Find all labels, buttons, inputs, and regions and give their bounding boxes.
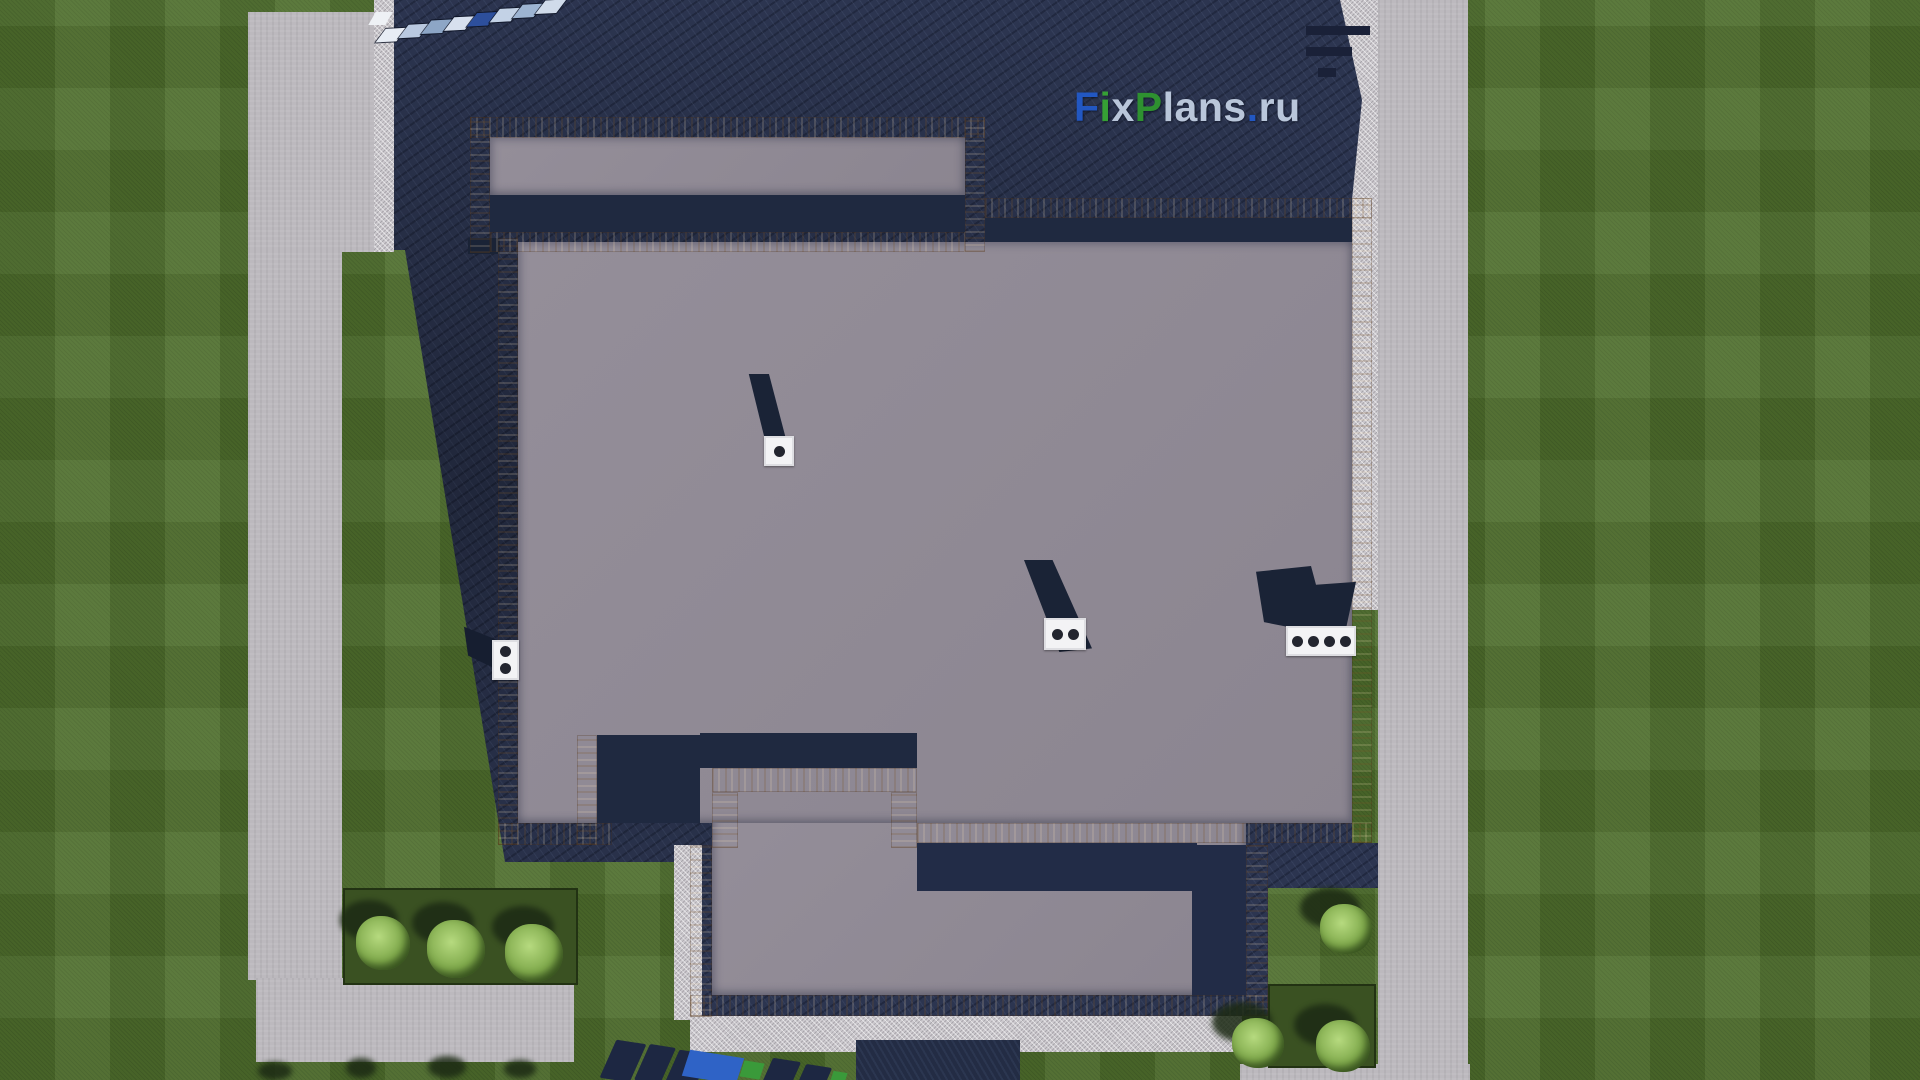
- tree-shadow: [258, 1062, 292, 1080]
- upper-roof-band: [490, 137, 965, 195]
- concrete-path-right: [1378, 0, 1468, 1080]
- tree-shadow: [504, 1060, 536, 1078]
- wood-parapet-bridge: [712, 768, 917, 792]
- watermark-letter: a: [1175, 84, 1198, 130]
- wood-parapet-top-right: [985, 198, 1372, 218]
- vent-hole: [1308, 636, 1319, 647]
- bush-right-corner: [1232, 1018, 1284, 1068]
- wood-parapet-bottom-right: [917, 823, 1372, 843]
- logo-green-shape: [739, 1060, 764, 1079]
- bush: [505, 924, 563, 982]
- wood-parapet-right: [1352, 198, 1372, 843]
- wood-parapet-notch-left: [577, 735, 597, 845]
- wood-bridge-leg-right: [891, 792, 917, 848]
- logo-letter-shape: [794, 1064, 832, 1080]
- logo-blue-shape: [682, 1050, 744, 1080]
- roof-notch-left: [597, 735, 700, 823]
- bush: [427, 920, 485, 978]
- wood-parapet-left-upper: [470, 117, 490, 253]
- ground-logo-3d: [608, 1036, 888, 1080]
- watermark: FixPlans.ru: [1074, 84, 1301, 131]
- vent-2-cap: [1044, 618, 1086, 650]
- bush-right-upper: [1320, 904, 1372, 954]
- concrete-pad-top-left: [248, 12, 376, 252]
- driveway-panel: [535, 0, 566, 14]
- vent-1-cap: [764, 436, 794, 466]
- entry-step-1: [1306, 26, 1370, 35]
- bush: [356, 916, 410, 970]
- wood-bridge-leg-left: [712, 792, 738, 848]
- tree-shadow: [428, 1056, 466, 1078]
- tree-shadow: [346, 1058, 376, 1078]
- watermark-letter: l: [1163, 84, 1175, 130]
- lower-roof-wood-bottom: [690, 995, 1268, 1016]
- wood-parapet-step: [965, 117, 985, 252]
- vent-3-cap: [1286, 626, 1356, 656]
- entry-step-3: [1318, 68, 1336, 77]
- watermark-letter: F: [1074, 84, 1100, 130]
- watermark-letter: n: [1198, 84, 1224, 130]
- roof-gap-shadow-top-right: [985, 218, 1352, 242]
- lower-roof-wood-right: [1246, 845, 1268, 1016]
- logo-green-shape: [830, 1071, 847, 1080]
- vent-hole: [500, 663, 511, 674]
- watermark-letter: .: [1247, 84, 1259, 130]
- watermark-letter: i: [1100, 84, 1112, 130]
- vent-hole: [500, 646, 511, 657]
- vent-left-cap: [492, 640, 519, 680]
- lower-roof-shadow-band-right: [1192, 845, 1246, 997]
- watermark-letter: s: [1223, 84, 1246, 130]
- entry-step-2: [1306, 47, 1352, 56]
- watermark-letter: x: [1111, 84, 1134, 130]
- bush-right-lower: [1316, 1020, 1370, 1072]
- wood-parapet-top-left: [470, 117, 985, 138]
- vent-hole: [1068, 629, 1079, 640]
- wood-parapet-inner-sill: [490, 232, 965, 252]
- wood-parapet-left: [498, 238, 518, 845]
- watermark-letter: u: [1275, 84, 1301, 130]
- vent-hole: [1292, 636, 1303, 647]
- vent-hole: [1052, 629, 1063, 640]
- concrete-path-left: [248, 250, 342, 980]
- roof-notch-center: [700, 733, 917, 768]
- site-plan-render: FixPlans.ru: [0, 0, 1920, 1080]
- vent-hole: [1340, 636, 1351, 647]
- logo-letter-shape: [759, 1058, 801, 1080]
- lower-roof-wood-left: [690, 845, 712, 1017]
- concrete-path-bottom: [256, 978, 574, 1062]
- lower-roof-shadow-band-top: [917, 843, 1197, 891]
- watermark-letter: P: [1135, 84, 1163, 130]
- roof-gap-shadow-top: [490, 195, 965, 232]
- vent-hole: [1324, 636, 1335, 647]
- vent-hole: [774, 446, 785, 457]
- watermark-letter: r: [1259, 84, 1275, 130]
